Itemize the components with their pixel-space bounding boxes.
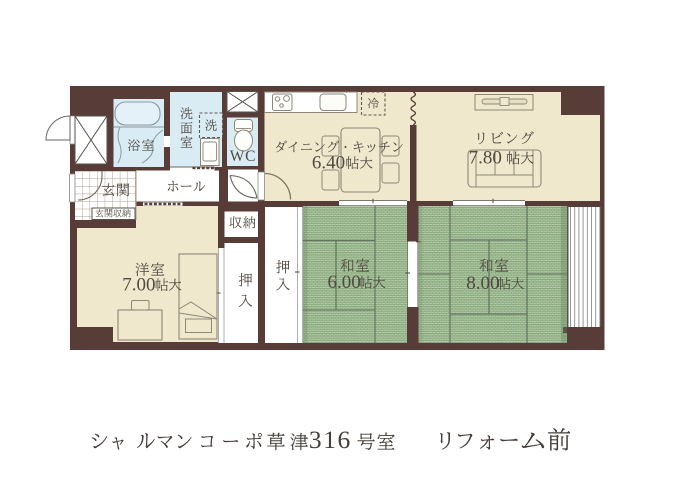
svg-text:6.40: 6.40 [312, 152, 345, 173]
svg-text:WC: WC [230, 148, 257, 165]
svg-text:7.00: 7.00 [122, 274, 155, 295]
svg-text:7.80: 7.80 [469, 148, 502, 169]
svg-text:8.00: 8.00 [466, 273, 499, 294]
svg-text:6.00: 6.00 [328, 272, 361, 293]
svg-text:316: 316 [309, 425, 352, 454]
